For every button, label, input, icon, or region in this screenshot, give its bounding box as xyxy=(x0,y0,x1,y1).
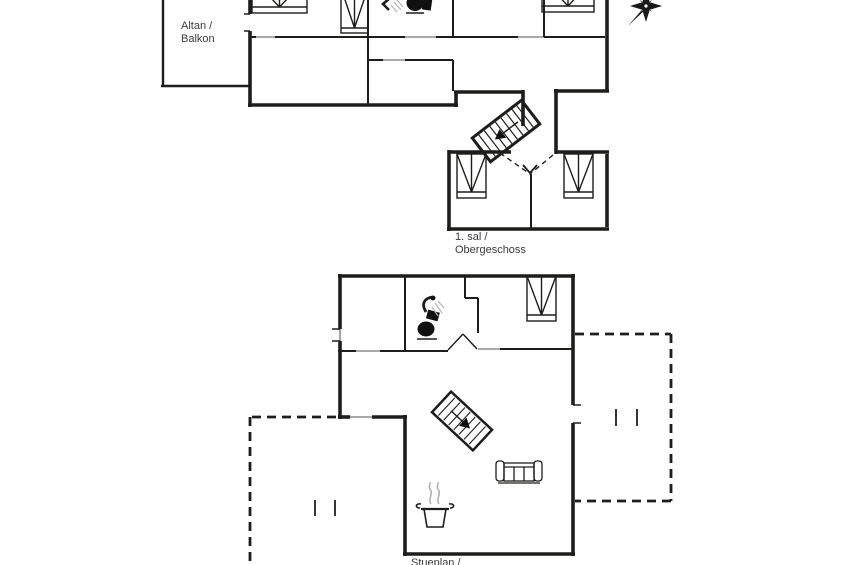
steam-icon xyxy=(429,482,439,504)
lower-floor-caption: Stueplan / xyxy=(411,557,461,565)
upper-floor-plan xyxy=(161,0,609,231)
lower-interior-walls xyxy=(338,276,573,351)
bed-icon xyxy=(252,0,307,13)
lower-floor-caption-line1: Stueplan / xyxy=(411,557,461,565)
door-thresholds xyxy=(256,37,544,60)
floor-plan-page: Altan / Balkon 1. sal / Obergeschoss Stu… xyxy=(0,0,848,565)
compass-rose-icon xyxy=(628,0,663,26)
floor-plan-drawing xyxy=(0,0,848,565)
upper-outer-walls xyxy=(248,0,609,231)
upper-floor-caption-line1: 1. sal / xyxy=(455,231,526,244)
sofa-icon xyxy=(496,461,542,483)
cooking-pot-icon xyxy=(416,504,453,527)
balcony-label-line2: Balkon xyxy=(181,33,215,46)
lower-floor-plan xyxy=(250,274,671,565)
terrace-dashed-outline-left xyxy=(250,417,336,565)
balcony-label: Altan / Balkon xyxy=(181,20,215,46)
upper-interior-walls xyxy=(250,0,605,229)
upper-floor-caption: 1. sal / Obergeschoss xyxy=(455,231,526,257)
toilet-icon xyxy=(406,0,433,13)
bed-icon xyxy=(457,154,486,198)
bed-icon xyxy=(542,0,594,12)
window-mark-icon xyxy=(244,14,250,31)
bed-icon xyxy=(527,276,556,321)
shower-icon xyxy=(383,0,403,12)
staircase-icon xyxy=(432,392,492,451)
balcony-label-line1: Altan / xyxy=(181,20,215,33)
terrace-dashed-outline-right xyxy=(575,334,671,501)
window-mark-icon xyxy=(332,329,581,423)
bed-icon xyxy=(341,0,368,33)
door-swing-dashes xyxy=(500,153,553,174)
door-swing-chevron xyxy=(523,165,537,173)
door-thresholds xyxy=(340,329,500,417)
bed-icon xyxy=(564,154,593,198)
door-swing-lines xyxy=(448,334,477,350)
upper-floor-caption-line2: Obergeschoss xyxy=(455,244,526,257)
